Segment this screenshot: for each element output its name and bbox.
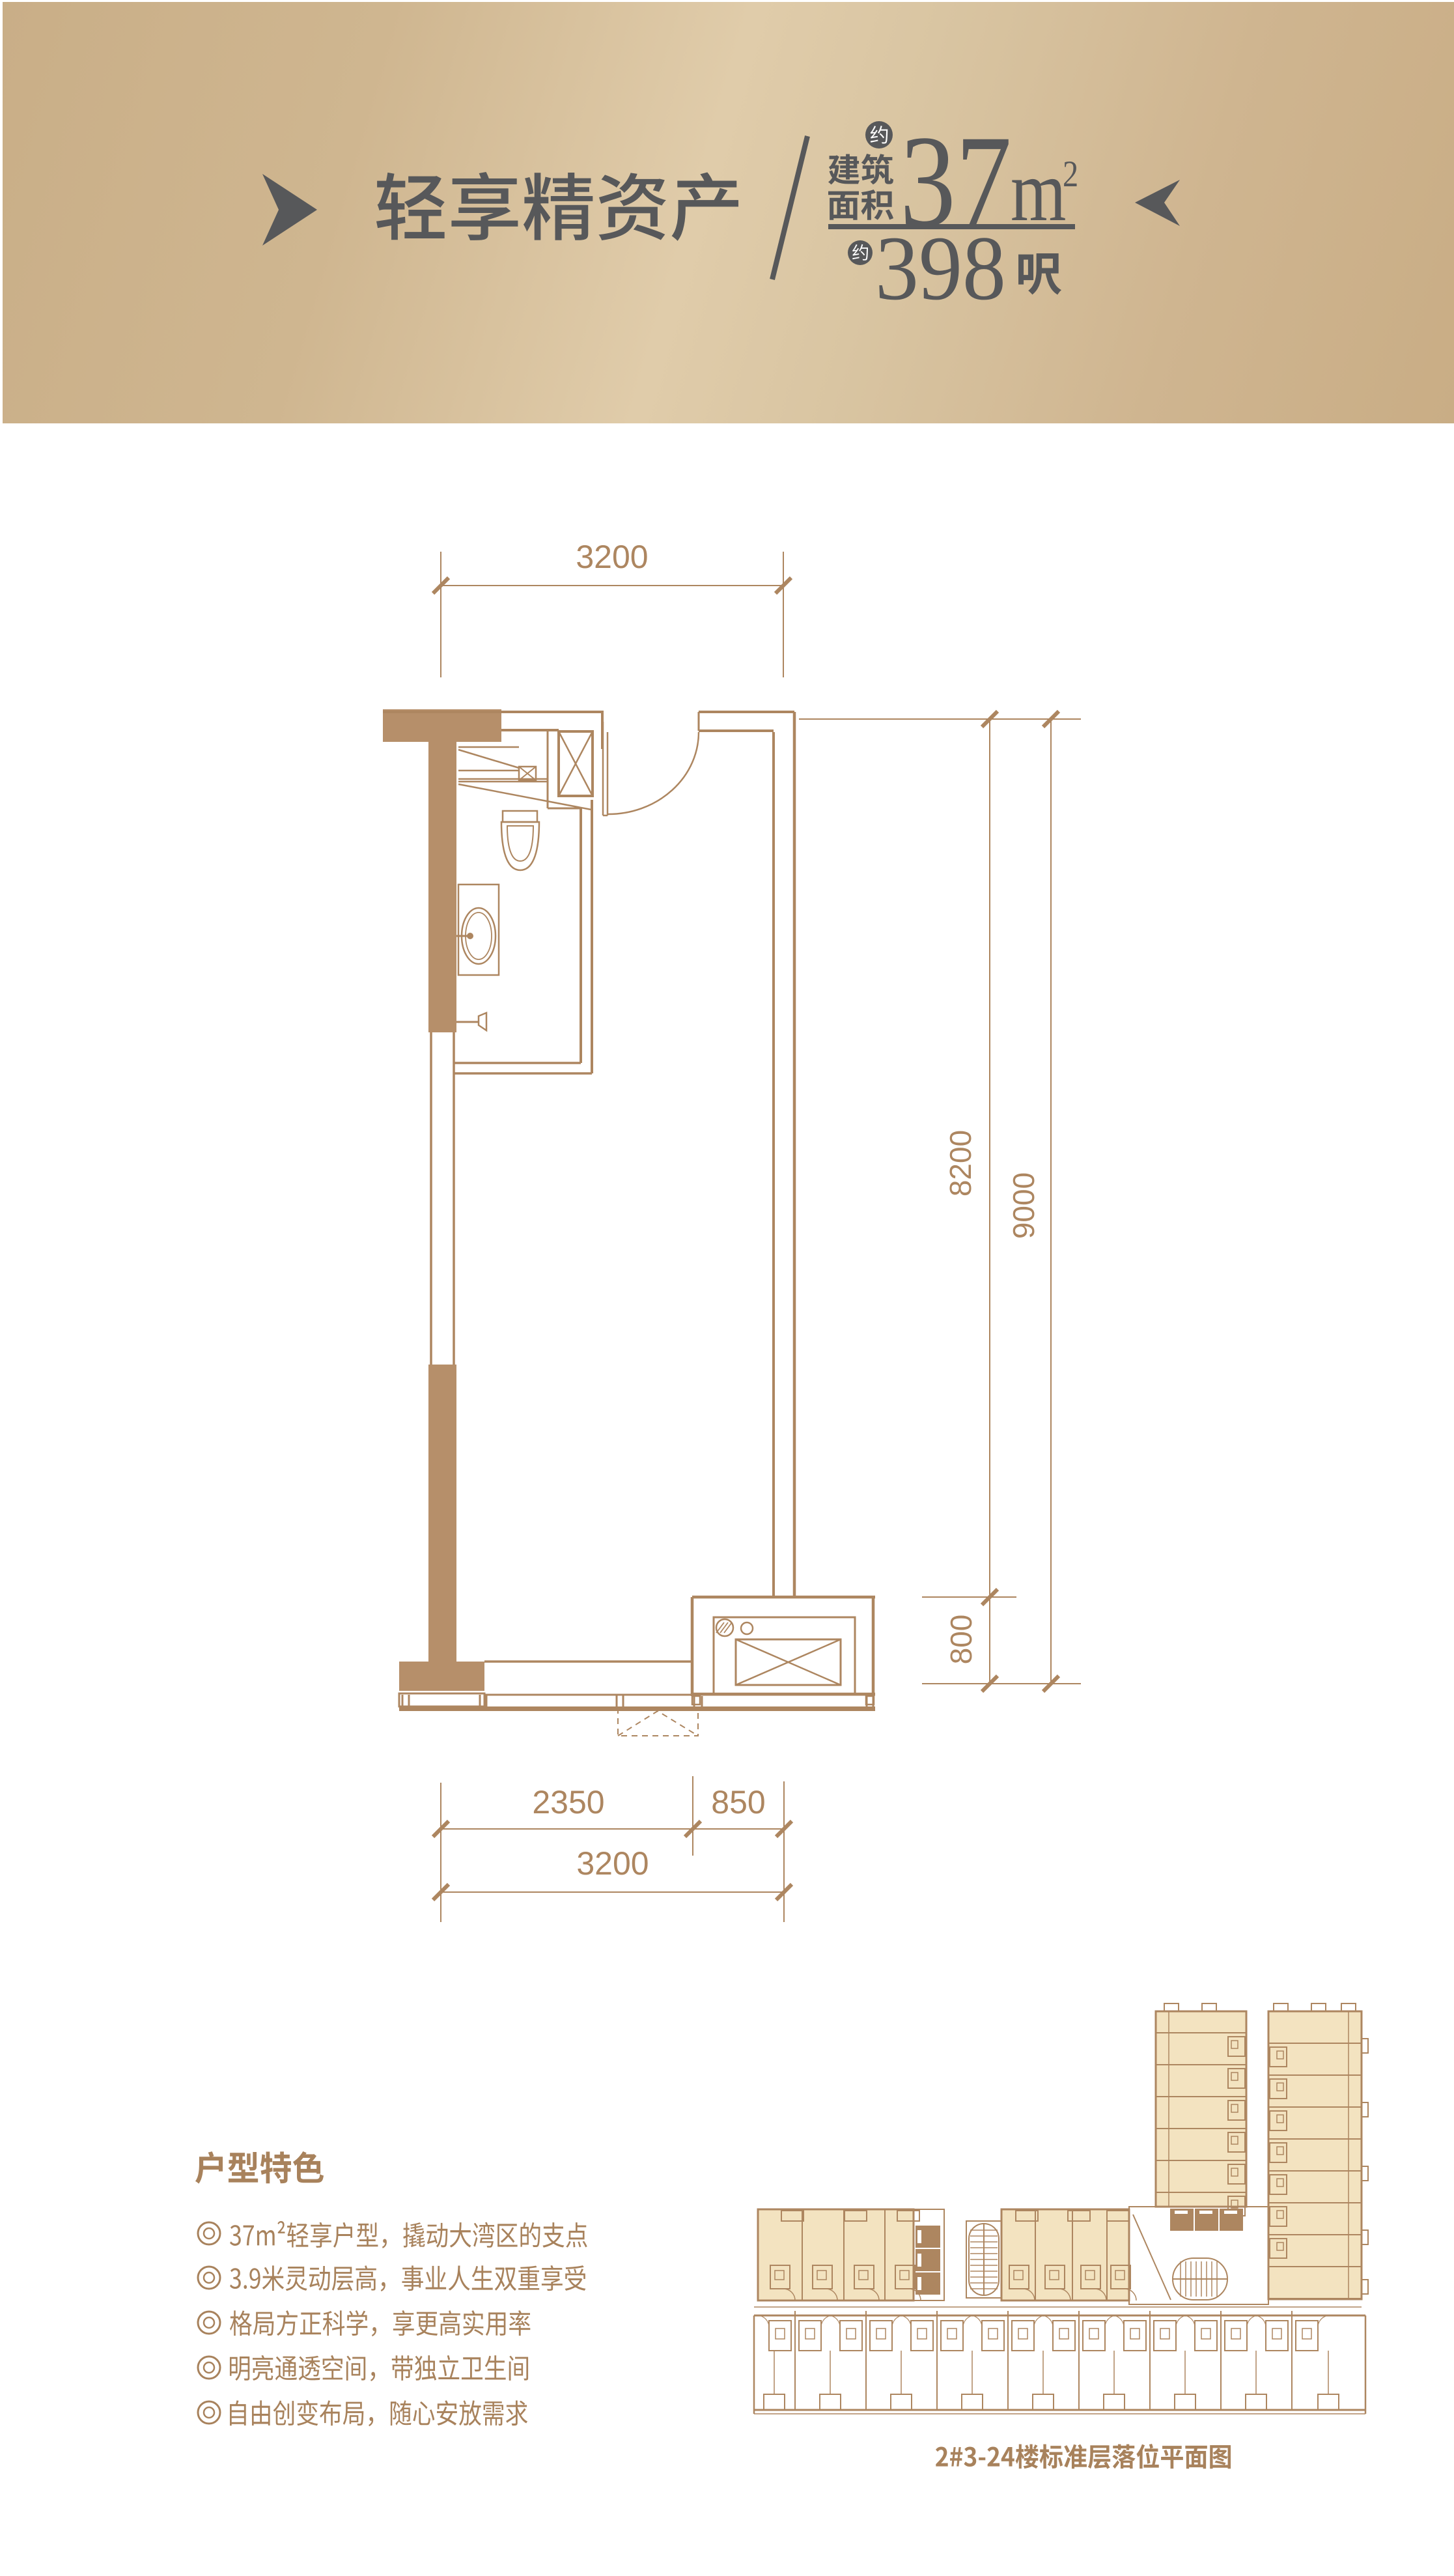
svg-text:850: 850 — [711, 1784, 765, 1820]
svg-text:9000: 9000 — [1007, 1172, 1041, 1239]
svg-text:800: 800 — [944, 1615, 978, 1665]
svg-text:2350: 2350 — [532, 1784, 604, 1820]
svg-text:398: 398 — [875, 217, 1006, 319]
svg-text:3200: 3200 — [576, 539, 648, 575]
svg-text:2: 2 — [1063, 154, 1078, 194]
svg-text:8200: 8200 — [944, 1130, 977, 1196]
svg-text:3200: 3200 — [576, 1845, 649, 1882]
